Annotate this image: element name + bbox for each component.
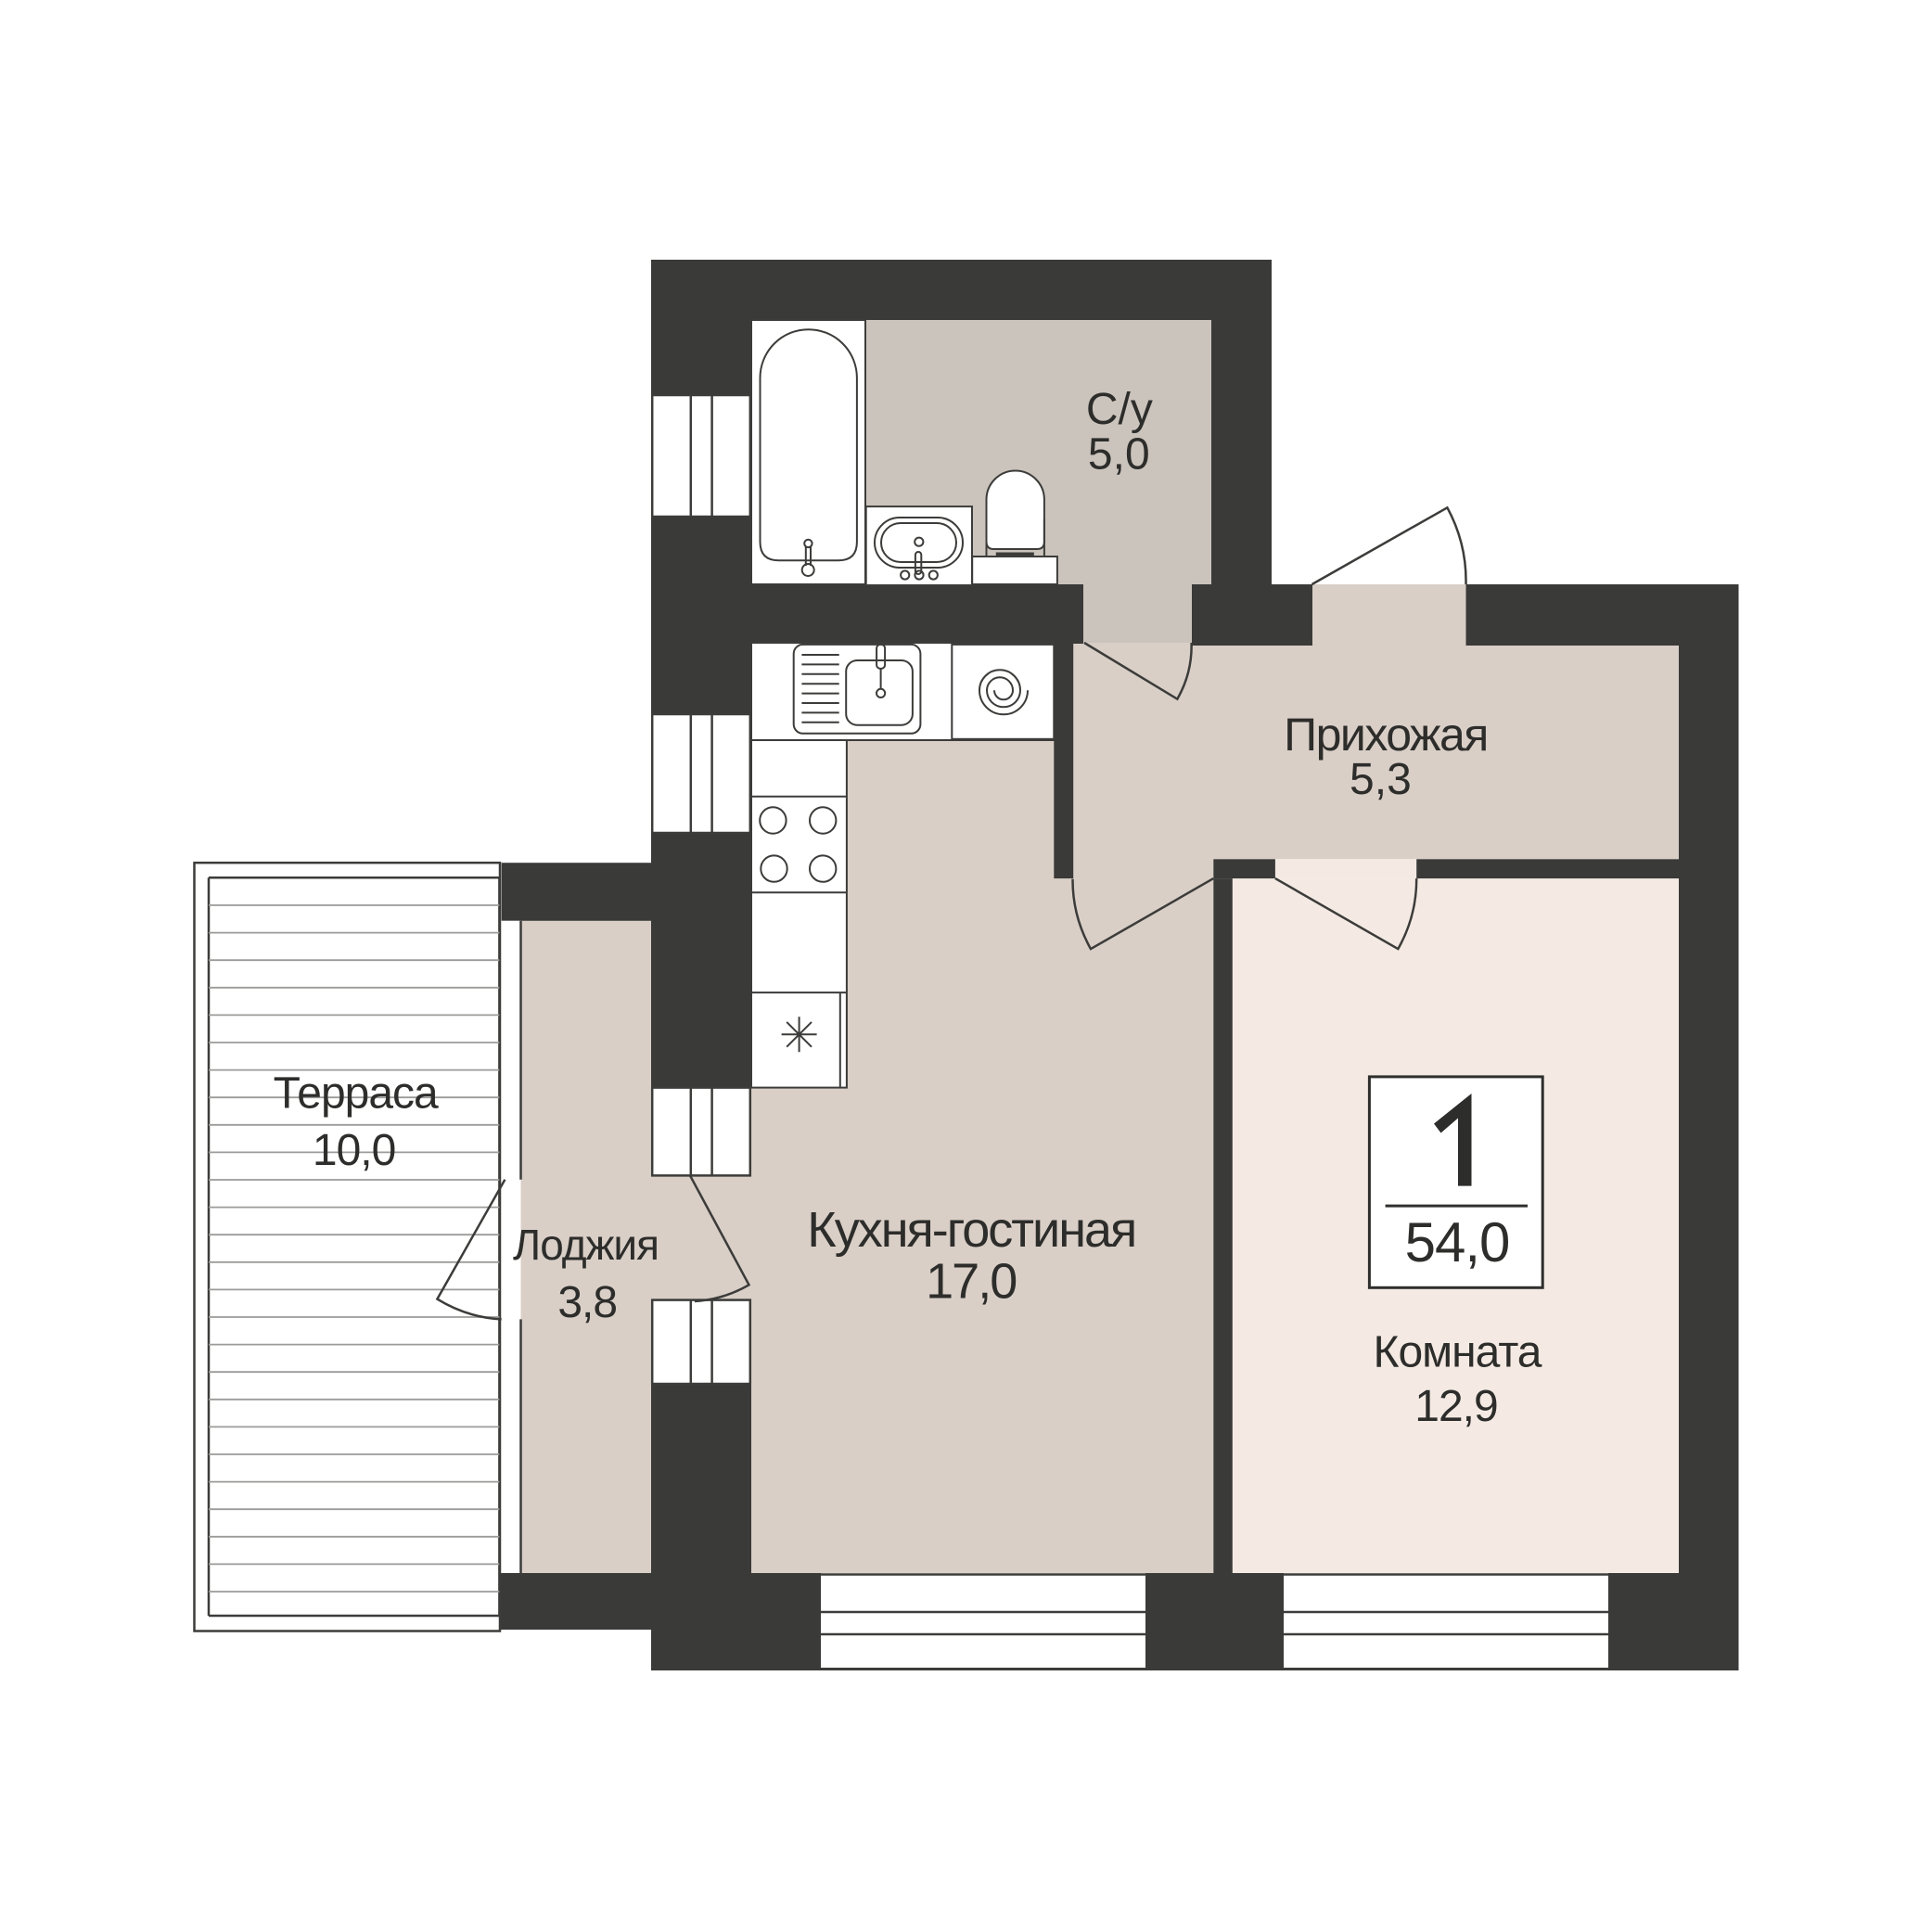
svg-text:5,3: 5,3 [1350, 755, 1412, 804]
svg-text:Лоджия: Лоджия [513, 1221, 659, 1269]
svg-text:10,0: 10,0 [313, 1126, 395, 1175]
svg-text:5,0: 5,0 [1088, 430, 1150, 480]
svg-text:Прихожая: Прихожая [1284, 709, 1488, 761]
svg-text:17,0: 17,0 [926, 1253, 1016, 1309]
svg-text:С/у: С/у [1086, 385, 1153, 434]
svg-text:12,9: 12,9 [1414, 1382, 1497, 1431]
svg-text:54,0: 54,0 [1405, 1211, 1510, 1273]
svg-text:3,8: 3,8 [557, 1278, 617, 1327]
svg-text:Кухня-гостиная: Кухня-гостиная [807, 1202, 1135, 1258]
svg-text:Терраса: Терраса [274, 1069, 439, 1119]
svg-text:Комната: Комната [1374, 1327, 1542, 1376]
